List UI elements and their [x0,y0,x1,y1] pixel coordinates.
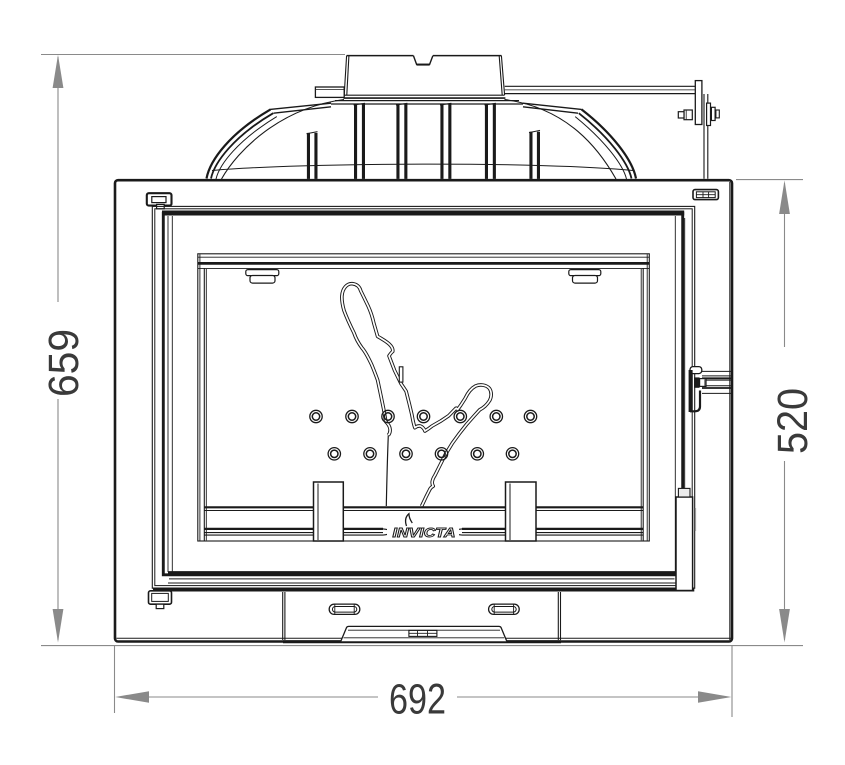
svg-text:659: 659 [40,329,88,397]
svg-text:520: 520 [769,388,817,454]
svg-text:692: 692 [389,676,446,724]
svg-text:INVICTA: INVICTA [393,525,456,540]
